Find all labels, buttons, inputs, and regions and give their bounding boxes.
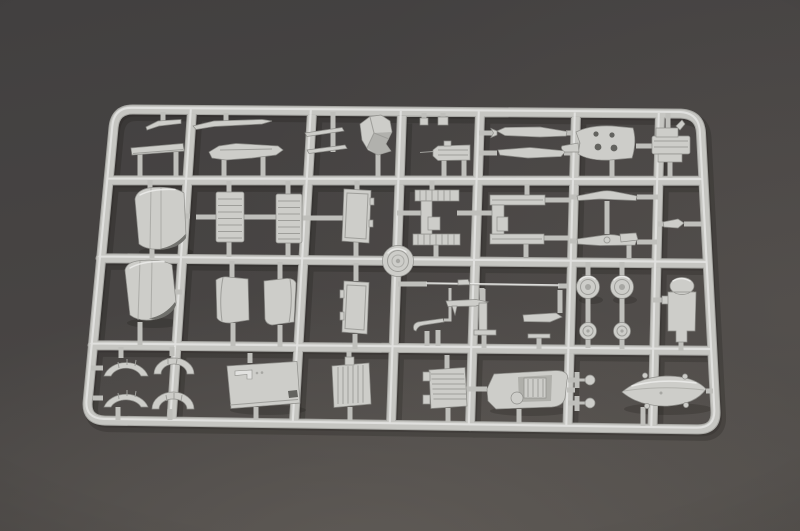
l-bracket-stem xyxy=(479,303,487,330)
gun-breech xyxy=(433,145,470,161)
long-half-upper xyxy=(497,127,567,137)
wheel-right-hub xyxy=(619,284,625,290)
long-half-lower xyxy=(498,148,566,159)
door-hinge-1 xyxy=(370,198,374,205)
float-stub-2 xyxy=(682,374,687,379)
angled-flat xyxy=(523,313,562,322)
fuselage-spine xyxy=(209,144,283,161)
equipment-box xyxy=(227,362,300,409)
hub-disc-left-dot xyxy=(586,329,589,332)
wheel-left-hub xyxy=(585,284,591,290)
tiny-block-2 xyxy=(438,117,448,125)
door-hinge-2 xyxy=(369,220,373,227)
antenna-bracket xyxy=(414,319,445,332)
hub-center xyxy=(396,259,400,263)
axle-fork-upper-disc xyxy=(585,375,595,385)
parts-row-4 xyxy=(104,357,706,411)
arc-segment-3 xyxy=(104,394,148,407)
gun-breech-sight xyxy=(444,141,451,146)
cowl-bracket-hook xyxy=(561,143,579,152)
open-frame-mid xyxy=(497,217,508,231)
float-stub-4 xyxy=(683,402,688,407)
equipment-box-dot-2 xyxy=(261,371,264,374)
float-stub-1 xyxy=(642,373,647,378)
small-wing-fin xyxy=(452,306,457,315)
equipment-box-dot-1 xyxy=(256,372,259,375)
tread-frame-top xyxy=(415,190,459,201)
bracket-hole-2 xyxy=(609,132,614,137)
sprue-hub xyxy=(383,246,414,277)
l-bracket-foot xyxy=(474,330,496,335)
axle-fork-lower-disc xyxy=(585,398,595,408)
bracket-hole-3 xyxy=(595,144,602,151)
gun-barrel xyxy=(420,152,433,153)
float-dot xyxy=(660,392,663,395)
dome-part-body xyxy=(668,292,696,342)
cowl-bracket-with-holes xyxy=(576,126,635,160)
tiny-block-1 xyxy=(420,118,428,125)
angled-flat-foot xyxy=(528,334,550,338)
equipment-box-slot xyxy=(288,390,298,398)
rod-sight-block xyxy=(458,280,470,286)
louvered-block-tab-2 xyxy=(423,395,430,404)
bracket-hole-1 xyxy=(593,131,598,136)
hull-gear-cylinder xyxy=(511,392,523,404)
door-2-hinge-2 xyxy=(340,312,344,320)
sprue-photo xyxy=(0,0,800,531)
tread-frame-mid xyxy=(428,217,440,230)
arc-segment-1 xyxy=(104,363,148,376)
layered-clamp-body xyxy=(652,136,690,154)
layered-clamp-bottom xyxy=(658,154,682,162)
door-2-hinge-1 xyxy=(340,290,344,298)
photo-background xyxy=(0,0,800,531)
layered-clamp-top xyxy=(656,128,678,137)
float-stub-3 xyxy=(644,403,649,408)
louvered-block-tab-1 xyxy=(423,372,430,381)
hub-disc-right-dot xyxy=(620,329,623,332)
finned-engine-tab xyxy=(345,357,354,365)
small-clip-2 xyxy=(620,233,638,242)
bracket-hole-4 xyxy=(611,145,618,152)
